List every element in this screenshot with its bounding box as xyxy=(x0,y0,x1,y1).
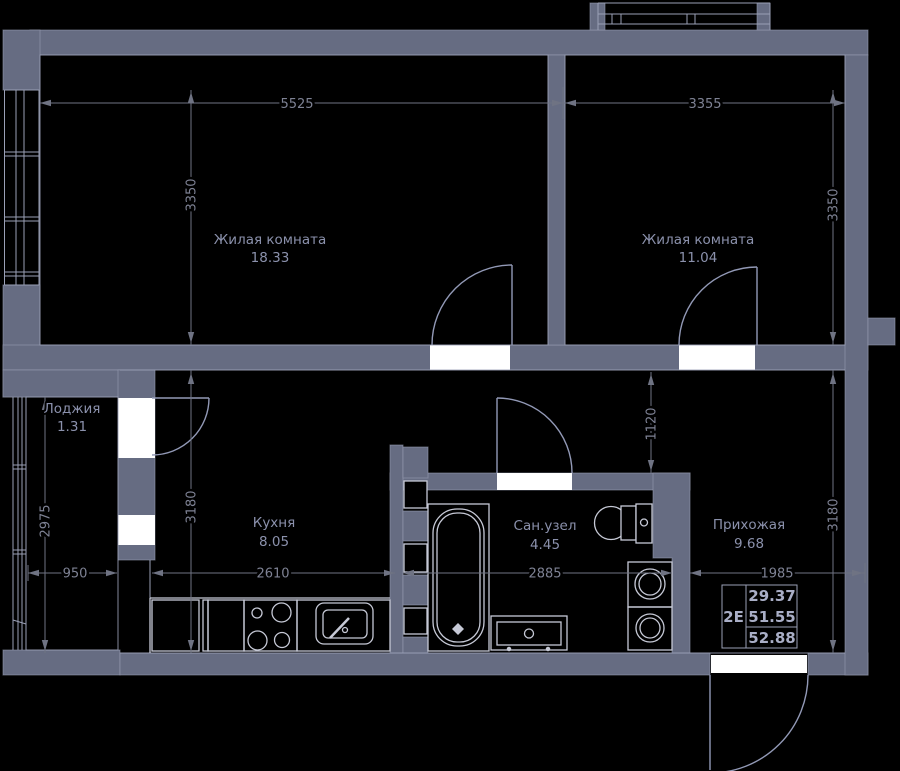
shaft-duct xyxy=(404,481,427,508)
toilet-icon xyxy=(595,504,653,543)
wall-segment xyxy=(30,30,868,55)
bay-stub xyxy=(757,3,770,30)
doors xyxy=(152,265,808,771)
room-area-hallway: 9.68 xyxy=(734,536,764,552)
dim-hall-gap-height: 1120 xyxy=(645,407,660,440)
area-value-1: 29.37 xyxy=(748,587,795,605)
shaft-duct xyxy=(404,608,427,634)
door-arc-icon-bathroom xyxy=(497,398,572,473)
room-label-living2: Жилая комната xyxy=(642,232,754,248)
window-loggia-left-icon xyxy=(13,397,26,650)
wall-segment xyxy=(120,653,710,675)
washing-machine-icon-2 xyxy=(628,607,672,650)
dim-hall-width: 1985 xyxy=(760,567,793,582)
dim-top-right-width: 3355 xyxy=(688,97,721,112)
dimension-labels: 5525 3355 3350 3350 2975 950 2610 2885 1… xyxy=(39,97,842,582)
dim-living1-height: 3350 xyxy=(185,178,200,211)
door-opening-entrance xyxy=(711,655,807,673)
washing-machine-icon xyxy=(628,562,672,607)
door-opening-living2 xyxy=(679,345,755,370)
kitchen-counter xyxy=(150,598,390,653)
wall-segment xyxy=(3,650,120,675)
shaft-block xyxy=(403,447,428,478)
room-area-kitchen: 8.05 xyxy=(259,534,289,550)
apartment-type-label: 2Е xyxy=(723,608,744,626)
vanity-sink-icon xyxy=(491,616,567,651)
floor-plan: 5525 3355 3350 3350 2975 950 2610 2885 1… xyxy=(0,0,900,771)
shaft-wall xyxy=(390,445,403,653)
dim-hall-height: 3180 xyxy=(827,498,842,531)
dim-living2-height: 3350 xyxy=(827,188,842,221)
stove-icon xyxy=(244,600,297,651)
door-arc-icon-loggia xyxy=(152,398,209,455)
dim-loggia-height: 2975 xyxy=(39,504,54,537)
floor-plan-canvas: 5525 3355 3350 3350 2975 950 2610 2885 1… xyxy=(0,0,900,771)
dim-top-left-width: 5525 xyxy=(280,97,313,112)
dim-bath-width: 2885 xyxy=(528,567,561,582)
wall-segment xyxy=(868,318,895,345)
door-opening-living1 xyxy=(430,345,510,370)
wall-segment xyxy=(548,55,565,345)
kitchen-sink-icon xyxy=(297,600,390,651)
shaft-block xyxy=(403,637,428,653)
room-area-living1: 18.33 xyxy=(251,250,290,266)
shaft-block xyxy=(403,575,428,605)
door-opening-loggia xyxy=(118,398,155,458)
room-label-bathroom: Сан.узел xyxy=(514,518,577,534)
room-area-bathroom: 4.45 xyxy=(530,537,560,553)
room-area-loggia: 1.31 xyxy=(57,419,87,435)
door-arc-icon-living2 xyxy=(679,267,757,345)
area-value-2: 51.55 xyxy=(748,608,795,626)
area-table: 2Е 29.37 51.55 52.88 xyxy=(722,585,797,648)
area-value-3: 52.88 xyxy=(748,629,795,647)
room-label-loggia: Лоджия xyxy=(44,401,101,417)
room-label-hallway: Прихожая xyxy=(713,517,785,533)
door-arc-icon-entrance xyxy=(710,675,808,771)
dim-kitchen-height: 3180 xyxy=(185,490,200,523)
dim-kitchen-width: 2610 xyxy=(256,567,289,582)
door-arc-icon-living1 xyxy=(432,265,512,345)
room-area-living2: 11.04 xyxy=(679,250,718,266)
shaft-duct xyxy=(404,544,427,572)
window-opening-loggia xyxy=(118,515,155,545)
shaft-block xyxy=(403,511,428,541)
window-bay-top-icon xyxy=(598,3,770,30)
wall-segment xyxy=(3,30,40,90)
window-living1-left-icon xyxy=(5,90,40,285)
wall-segment xyxy=(3,370,120,397)
room-label-kitchen: Кухня xyxy=(253,515,296,531)
dim-loggia-width: 950 xyxy=(63,567,88,582)
door-opening-bathroom xyxy=(497,473,572,490)
room-label-living1: Жилая комната xyxy=(214,232,326,248)
kitchen-cabinet-icon xyxy=(208,600,244,651)
bathtub-icon xyxy=(428,504,489,651)
